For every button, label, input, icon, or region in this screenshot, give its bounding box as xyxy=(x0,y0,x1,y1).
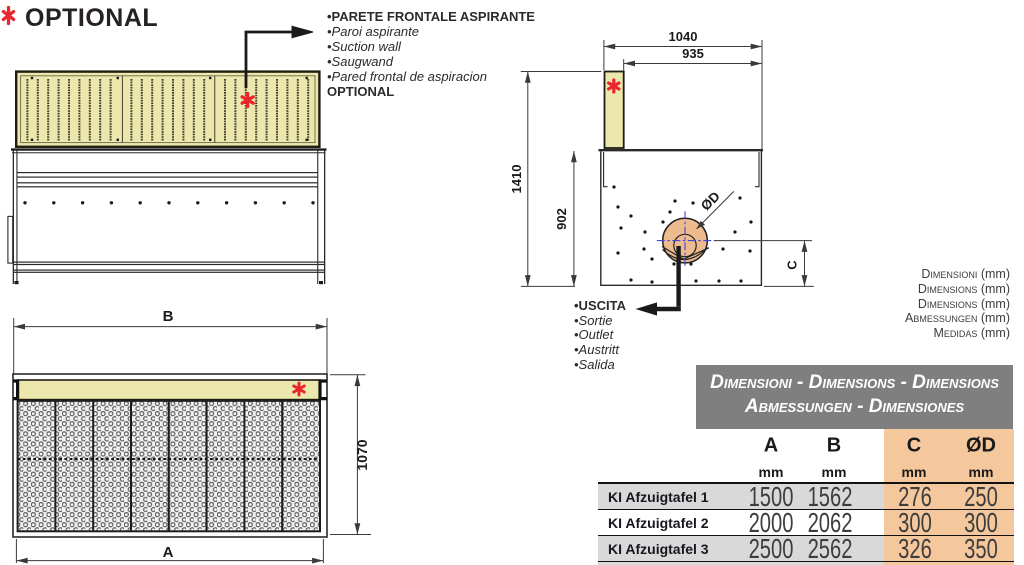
svg-text:1410: 1410 xyxy=(509,165,524,194)
svg-text:A: A xyxy=(163,544,174,561)
svg-text:1040: 1040 xyxy=(669,30,698,44)
svg-text:B: B xyxy=(163,308,174,325)
svg-text:1070: 1070 xyxy=(354,439,370,470)
svg-text:935: 935 xyxy=(682,46,704,61)
svg-text:902: 902 xyxy=(554,208,569,230)
svg-text:ØD: ØD xyxy=(698,188,723,213)
